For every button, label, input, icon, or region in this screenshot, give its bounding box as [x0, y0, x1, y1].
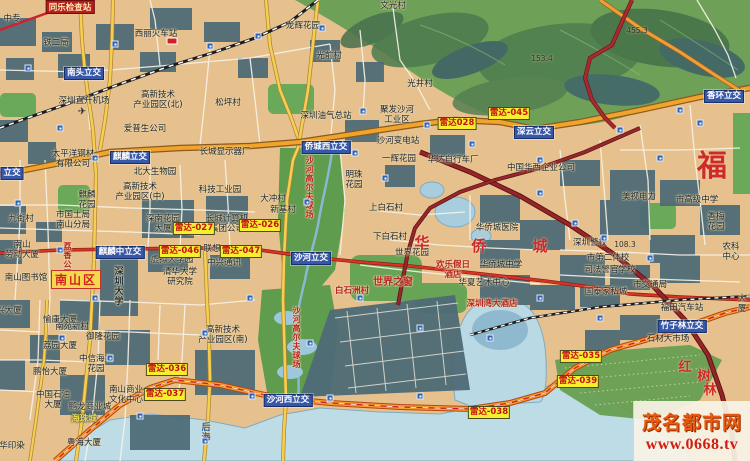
- place-label: 下白石村: [373, 233, 407, 243]
- radar-marker: 雷达-026: [239, 219, 281, 232]
- place-label: 大冲村: [260, 195, 286, 205]
- transit-stop-icon: [601, 235, 608, 242]
- interchange-label: 深云立交: [514, 126, 554, 139]
- vertical-red-label: 沙河高尔夫球场: [292, 306, 300, 369]
- place-label: 南山图书馆: [5, 274, 48, 284]
- transit-stop-icon: [207, 43, 214, 50]
- place-label: 光前村: [316, 52, 342, 62]
- place-label: 鹏怡大厦: [33, 368, 67, 378]
- transit-stop-icon: [424, 122, 431, 129]
- transit-stop-icon: [360, 108, 367, 115]
- place-label: 聚发沙河 工业区: [380, 106, 414, 125]
- red-place-label: 欢乐假日 酒店: [436, 261, 470, 280]
- place-label: 麒麟 花园: [78, 191, 95, 210]
- transit-stop-icon: [59, 335, 66, 342]
- radar-marker: 雷达-046: [159, 245, 201, 258]
- transit-stop-icon: [304, 199, 311, 206]
- interchange-label: 侨城西立交: [302, 141, 351, 154]
- checkpoint-label: 同乐检查站: [46, 0, 95, 14]
- map-label-layer: 中专西丽火车站铁二局文光村龙辉花园光前村光井村松坪村深圳直升机场高新技术 产业园…: [0, 0, 750, 461]
- place-label: 高新技术 产业园区(北): [133, 91, 182, 110]
- place-label: 华达自行车厂: [427, 156, 478, 166]
- transit-stop-icon: [107, 355, 114, 362]
- transit-stop-icon: [57, 125, 64, 132]
- transit-stop-icon: [647, 255, 654, 262]
- interchange-label: 麒麟中立交: [96, 246, 145, 259]
- place-label: 荔园大厦: [43, 342, 77, 352]
- place-label: 北大生物园: [134, 168, 177, 178]
- place-label: 华侨城中学: [480, 261, 523, 271]
- watermark-site-url: www.0668.tv: [646, 436, 739, 454]
- transit-stop-icon: [537, 157, 544, 164]
- place-label: 石材大市场: [647, 335, 690, 345]
- transit-stop-icon: [487, 335, 494, 342]
- place-label: 明珠 花园: [345, 171, 362, 190]
- transit-stop-icon: [57, 247, 64, 254]
- radar-marker: 雷达-035: [560, 350, 602, 363]
- place-label: 中国石油 大厦: [36, 391, 70, 410]
- transit-stop-icon: [469, 141, 476, 148]
- interchange-label: 立交: [0, 167, 23, 180]
- transit-stop-icon: [137, 413, 144, 420]
- big-red-char: 福: [697, 150, 727, 184]
- watermark-site-name: 茂名都市网: [642, 408, 742, 435]
- place-label: 沙河变电站: [377, 137, 420, 147]
- transit-stop-icon: [247, 295, 254, 302]
- vertical-dark-label: 深圳大学: [113, 266, 122, 306]
- place-label: 新基村: [270, 206, 296, 216]
- place-label: 司法警官学校: [584, 266, 635, 276]
- red-place-label: 世界之窗: [373, 277, 413, 288]
- transit-stop-icon: [25, 65, 32, 72]
- place-label: 粤海大厦: [67, 439, 101, 449]
- transit-stop-icon: [319, 25, 326, 32]
- elevation-label: 108.3: [614, 240, 635, 249]
- radar-marker: 雷达-036: [146, 363, 188, 376]
- interchange-label: 沙河西立交: [264, 394, 313, 407]
- interchange-label: 麒麟立交: [110, 151, 150, 164]
- place-label: 香梅 花园: [707, 213, 724, 232]
- radar-marker: 雷达028: [438, 117, 477, 130]
- airport-icon: ✈: [78, 107, 86, 118]
- transit-stop-icon: [537, 295, 544, 302]
- watermark: 茂名都市网 www.0668.tv: [633, 401, 750, 461]
- place-label: 爱普生公司: [124, 125, 167, 135]
- transit-stop-icon: [112, 41, 119, 48]
- place-label: 中兴通讯: [207, 259, 241, 269]
- elevation-label: 153.4: [531, 54, 552, 63]
- place-label: 文光村: [380, 2, 406, 12]
- place-label: 中专: [3, 15, 20, 25]
- transit-stop-icon: [417, 325, 424, 332]
- place-label: 联想: [203, 245, 220, 255]
- place-label: 鹏龙商业城: [69, 403, 112, 413]
- place-label: 美视电力: [622, 193, 656, 203]
- place-label: 龙辉花园: [286, 22, 320, 32]
- radar-marker: 雷达-038: [468, 406, 510, 419]
- place-label: 松坪村: [215, 99, 241, 109]
- transit-stop-icon: [677, 107, 684, 114]
- place-label: 福田汽车站: [661, 304, 704, 314]
- transit-stop-icon: [357, 295, 364, 302]
- map-canvas[interactable]: 中专西丽火车站铁二局文光村龙辉花园光前村光井村松坪村深圳直升机场高新技术 产业园…: [0, 0, 750, 461]
- place-label: 市高级中学: [676, 196, 719, 206]
- transit-stop-icon: [352, 150, 359, 157]
- transit-stop-icon: [92, 155, 99, 162]
- place-label: 农科中心: [722, 243, 741, 262]
- place-label: 高新技术 产业园区(中): [115, 183, 164, 202]
- transit-stop-icon: [417, 393, 424, 400]
- place-label: 大厦: [738, 295, 747, 314]
- transit-stop-icon: [307, 340, 314, 347]
- big-red-char: 城: [532, 238, 547, 255]
- radar-marker: 雷达-039: [557, 375, 599, 388]
- radar-marker: 雷达-047: [220, 245, 262, 258]
- place-label: 愉康大厦: [43, 316, 77, 326]
- elevation-label: 455.3: [626, 26, 647, 35]
- interchange-label: 竹子林立交: [658, 320, 707, 333]
- place-label: 南山商业 文化中心: [109, 386, 143, 405]
- place-label: 市交通局: [633, 281, 667, 291]
- place-label: 铁二局: [43, 39, 69, 49]
- place-label: 兴大厦: [0, 307, 22, 317]
- transit-stop-icon: [327, 395, 334, 402]
- transit-stop-icon: [572, 220, 579, 227]
- place-label: 清华大学 研究院: [163, 268, 197, 287]
- red-place-label: 深圳湾大酒店: [466, 300, 517, 310]
- transit-stop-icon: [597, 315, 604, 322]
- place-label: 长城显示器厂: [199, 148, 250, 158]
- place-label: 华印染: [0, 442, 25, 452]
- interchange-label: 沙河立交: [291, 252, 331, 265]
- place-label: 市国土局 南山分局: [56, 211, 90, 230]
- railway-station-icon: [167, 38, 178, 45]
- interchange-label: 香环立交: [704, 90, 744, 103]
- place-label: 中国华西企业公司: [507, 164, 575, 174]
- place-label: 华夏艺术中心: [458, 279, 509, 289]
- place-label: 一辉花园: [382, 155, 416, 165]
- place-label: 科技工业园: [199, 186, 242, 196]
- place-label: 御隆花园: [86, 333, 120, 343]
- red-place-label: 白石洲村: [335, 287, 369, 297]
- place-label: 九街村: [8, 215, 34, 225]
- transit-stop-icon: [617, 127, 624, 134]
- radar-marker: 雷达-027: [173, 222, 215, 235]
- interchange-label: 南头立交: [64, 67, 104, 80]
- transit-stop-icon: [537, 190, 544, 197]
- place-label: 国泰家私城: [585, 288, 628, 298]
- place-label: 市第二体校: [587, 254, 630, 264]
- vertical-red-label: 沙河高尔夫球场: [305, 156, 313, 219]
- big-red-char: 华: [414, 235, 429, 252]
- place-label: 深圳油气总站: [300, 112, 351, 122]
- transit-stop-icon: [255, 33, 262, 40]
- big-red-char: 侨: [471, 238, 486, 255]
- transit-stop-icon: [202, 330, 209, 337]
- place-label: 南山 劳动大厦: [5, 241, 39, 260]
- transit-stop-icon: [202, 438, 209, 445]
- place-label: 太平洋钢材 有限公司: [52, 150, 95, 169]
- place-label: 上白石村: [369, 204, 403, 214]
- transit-stop-icon: [15, 200, 22, 207]
- place-label: 深圳直升机场: [58, 97, 109, 107]
- radar-marker: 雷达-037: [144, 388, 186, 401]
- transit-stop-icon: [657, 155, 664, 162]
- transit-stop-icon: [697, 120, 704, 127]
- place-label: 华侨城医院: [476, 224, 519, 234]
- big-red-char: 林: [703, 384, 716, 399]
- big-red-char: 红: [678, 361, 691, 376]
- district-label: 南山区: [51, 270, 101, 289]
- transit-stop-icon: [249, 393, 256, 400]
- transit-stop-icon: [92, 295, 99, 302]
- place-label: 光井村: [407, 80, 433, 90]
- radar-marker: 雷达-045: [488, 107, 530, 120]
- yellow-place-label: 海珠城: [71, 415, 97, 425]
- transit-stop-icon: [382, 175, 389, 182]
